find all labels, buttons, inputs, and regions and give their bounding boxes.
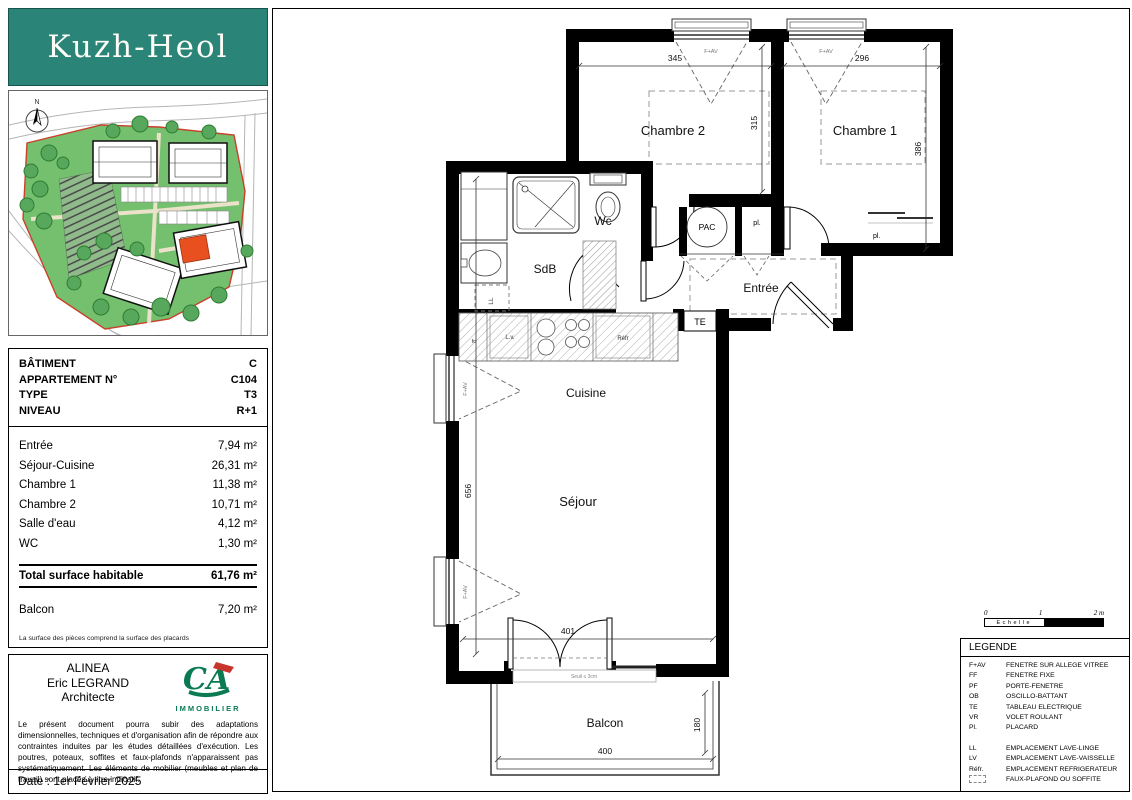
window-label: F+AV — [463, 585, 469, 599]
scale-bar: 0 1 2 m Echelle — [984, 609, 1104, 627]
legend-row: FF FENETRE FIXE — [961, 671, 1129, 681]
total-value: 61,76 m² — [211, 570, 257, 582]
room-label-chambre2: Chambre 2 — [641, 123, 705, 138]
legend-row: F+AV FENETRE SUR ALLEGE VITREE — [961, 661, 1129, 671]
architect-role: Architecte — [28, 690, 148, 705]
balcony-area-row: Balcon 7,20 m² — [19, 604, 257, 616]
threshold: Seuil ≤ 3cm — [513, 670, 656, 682]
room-label-entree: Entrée — [743, 281, 779, 295]
legend-label: FAUX-PLAFOND OU SOFFITE — [1006, 775, 1129, 787]
dim-656: 656 — [463, 484, 473, 498]
svg-text:N: N — [34, 99, 39, 106]
apartment-info-card: BÂTIMENT C APPARTEMENT N° C104 TYPE T3 N… — [8, 348, 268, 648]
architect-name: Eric LEGRAND — [28, 676, 148, 691]
dim-386: 386 — [913, 142, 923, 156]
legend-abbr: TE — [969, 703, 1006, 713]
room-label-sdb: SdB — [534, 262, 557, 276]
architect-firm: ALINEA — [28, 661, 148, 676]
scale-label: Echelle — [984, 618, 1045, 627]
legend-row: LL EMPLACEMENT LAVE-LINGE — [961, 744, 1129, 754]
room-area: 11,38 m² — [212, 476, 257, 496]
scale-black-segment — [1045, 618, 1105, 627]
legend-abbr: Pl. — [969, 723, 1006, 733]
project-brand-banner: Kuzh-Heol — [8, 8, 268, 86]
washbasin-icon — [461, 243, 507, 283]
window-label: F+AV — [463, 382, 469, 396]
document-date: Date : 1er Février 2025 — [9, 769, 267, 793]
info-label: TYPE — [19, 388, 48, 404]
legend-label: EMPLACEMENT LAVE-LINGE — [1006, 744, 1129, 754]
legend-label: TABLEAU ELECTRIQUE — [1006, 703, 1129, 713]
legend-row: PF PORTE-FENETRE — [961, 682, 1129, 692]
legend-group-openings: F+AV FENETRE SUR ALLEGE VITREE FF FENETR… — [961, 661, 1129, 734]
legend-row: Pl. PLACARD — [961, 723, 1129, 733]
kitchen-counter: fo L.v. Réfr — [459, 313, 678, 361]
washer-label: LL — [488, 297, 495, 305]
electrical-panel: TE — [684, 311, 716, 331]
legend-abbr: FF — [969, 671, 1006, 681]
legend-label: PORTE-FENETRE — [1006, 682, 1129, 692]
total-area-row: Total surface habitable 61,76 m² — [19, 564, 257, 588]
legend-title: LEGENDE — [961, 639, 1129, 657]
north-compass-icon: N — [26, 99, 48, 132]
fridge-label: Réfr — [617, 336, 628, 342]
info-row: NIVEAU R+1 — [19, 404, 257, 420]
washer-slot: LL — [475, 285, 509, 311]
te-label: TE — [694, 317, 706, 327]
room-name: WC — [19, 535, 38, 555]
highlighted-unit — [179, 235, 210, 263]
info-row: APPARTEMENT N° C104 — [19, 373, 257, 389]
room-name: Séjour-Cuisine — [19, 457, 94, 477]
dim-345: 345 — [668, 53, 682, 63]
legend-abbr: Réfr. — [969, 765, 1006, 775]
legend-label: PLACARD — [1006, 723, 1129, 733]
scale-tick-2: 2 m — [1094, 609, 1104, 617]
soffit-pocket — [583, 241, 616, 309]
placard-label: pl. — [753, 220, 760, 227]
balcony-label: Balcon — [19, 604, 54, 616]
site-plan-drawing: N — [9, 91, 267, 335]
info-value: T3 — [244, 388, 257, 404]
dim-315: 315 — [749, 116, 759, 130]
total-label: Total surface habitable — [19, 570, 143, 582]
window-label: F+AV — [819, 49, 833, 55]
ca-logo-label: IMMOBILIER — [162, 704, 254, 713]
area-row: Séjour-Cuisine 26,31 m² — [19, 457, 257, 477]
room-area: 26,31 m² — [212, 457, 257, 477]
legend-label: VOLET ROULANT — [1006, 713, 1129, 723]
area-row: WC 1,30 m² — [19, 535, 257, 555]
project-title: Kuzh-Heol — [47, 29, 228, 65]
balcony-value: 7,20 m² — [218, 604, 257, 616]
info-label: NIVEAU — [19, 404, 61, 420]
dishwasher-label: L.v. — [505, 335, 515, 341]
info-value: R+1 — [237, 404, 258, 420]
room-label-wc: Wc — [594, 214, 611, 228]
room-name: Salle d'eau — [19, 515, 76, 535]
legend-label: EMPLACEMENT REFRIGERATEUR — [1006, 765, 1129, 775]
legend-row: Réfr. EMPLACEMENT REFRIGERATEUR — [961, 765, 1129, 775]
legend: LEGENDE F+AV FENETRE SUR ALLEGE VITREE F… — [960, 638, 1129, 791]
chambre1-placard: pl. — [868, 213, 933, 240]
pac-label: PAC — [699, 222, 716, 232]
scale-tick-0: 0 — [984, 609, 988, 617]
apartment-info-rows: BÂTIMENT C APPARTEMENT N° C104 TYPE T3 N… — [19, 357, 257, 419]
room-area: 4,12 m² — [218, 515, 257, 535]
area-row: Salle d'eau 4,12 m² — [19, 515, 257, 535]
area-row: Entrée 7,94 m² — [19, 437, 257, 457]
window-left-upper: F+AV — [434, 354, 521, 423]
legend-abbr: LL — [969, 744, 1006, 754]
dim-401: 401 — [561, 626, 575, 636]
legend-row: OB OSCILLO-BATTANT — [961, 692, 1129, 702]
legend-label: EMPLACEMENT LAVE-VAISSELLE — [1006, 754, 1129, 764]
ca-immobilier-logo: CA IMMOBILIER — [162, 661, 254, 713]
scale-tick-1: 1 — [1039, 609, 1043, 617]
legend-row-faux-plafond: FAUX-PLAFOND OU SOFFITE — [961, 775, 1129, 787]
pac-closet: PAC pl. — [679, 207, 784, 281]
room-name: Entrée — [19, 437, 53, 457]
info-value: C — [249, 357, 257, 373]
dashed-box-icon — [969, 775, 986, 783]
legend-row: VR VOLET ROULANT — [961, 713, 1129, 723]
legend-row: TE TABLEAU ELECTRIQUE — [961, 703, 1129, 713]
site-plan-thumbnail: N — [8, 90, 268, 336]
threshold-label: Seuil ≤ 3cm — [571, 674, 597, 680]
ca-logo-icon: CA — [179, 661, 237, 699]
area-footnote: La surface des pièces comprend la surfac… — [19, 635, 189, 642]
dim-180: 180 — [692, 718, 702, 732]
room-area: 10,71 m² — [212, 496, 257, 516]
dim-296: 296 — [855, 53, 869, 63]
architect-card: ALINEA Eric LEGRAND Architecte CA IMMOBI… — [8, 654, 268, 794]
room-label-balcon: Balcon — [587, 716, 624, 730]
room-area: 7,94 m² — [218, 437, 257, 457]
room-area: 1,30 m² — [218, 535, 257, 555]
legend-abbr: PF — [969, 682, 1006, 692]
legend-label: OSCILLO-BATTANT — [1006, 692, 1129, 702]
scale-ticks: 0 1 2 m — [984, 609, 1104, 617]
info-value: C104 — [231, 373, 257, 389]
shower-icon — [513, 177, 579, 233]
info-row: TYPE T3 — [19, 388, 257, 404]
legend-abbr: VR — [969, 713, 1006, 723]
area-row: Chambre 2 10,71 m² — [19, 496, 257, 516]
divider — [9, 426, 267, 427]
room-label-sejour: Séjour — [559, 494, 597, 509]
legend-abbr: LV — [969, 754, 1006, 764]
room-label-chambre1: Chambre 1 — [833, 123, 897, 138]
legend-row: LV EMPLACEMENT LAVE-VAISSELLE — [961, 754, 1129, 764]
sdb-closet — [461, 172, 507, 240]
room-name: Chambre 1 — [19, 476, 76, 496]
legend-abbr: OB — [969, 692, 1006, 702]
window-label: F+AV — [704, 49, 718, 55]
placard-label: pl. — [873, 233, 880, 240]
room-area-rows: Entrée 7,94 m² Séjour-Cuisine 26,31 m² C… — [19, 437, 257, 554]
info-label: BÂTIMENT — [19, 357, 76, 373]
room-name: Chambre 2 — [19, 496, 76, 516]
dimension-lines — [460, 44, 943, 762]
floor-plan-panel: F+AV F+AV F+AV F+AV — [272, 8, 1130, 792]
architect-identity: ALINEA Eric LEGRAND Architecte — [28, 661, 148, 705]
dim-400: 400 — [598, 746, 612, 756]
info-label: APPARTEMENT N° — [19, 373, 117, 389]
info-row: BÂTIMENT C — [19, 357, 257, 373]
area-row: Chambre 1 11,38 m² — [19, 476, 257, 496]
window-left-lower: F+AV — [434, 557, 521, 626]
legend-group-appliances: LL EMPLACEMENT LAVE-LINGE LV EMPLACEMENT… — [961, 744, 1129, 775]
legend-label: FENETRE FIXE — [1006, 671, 1129, 681]
legend-label: FENETRE SUR ALLEGE VITREE — [1006, 661, 1129, 671]
dimension-labels: 345 296 315 386 656 401 400 180 — [463, 53, 923, 756]
room-label-cuisine: Cuisine — [566, 386, 606, 400]
legend-abbr — [969, 775, 1006, 787]
legend-abbr: F+AV — [969, 661, 1006, 671]
